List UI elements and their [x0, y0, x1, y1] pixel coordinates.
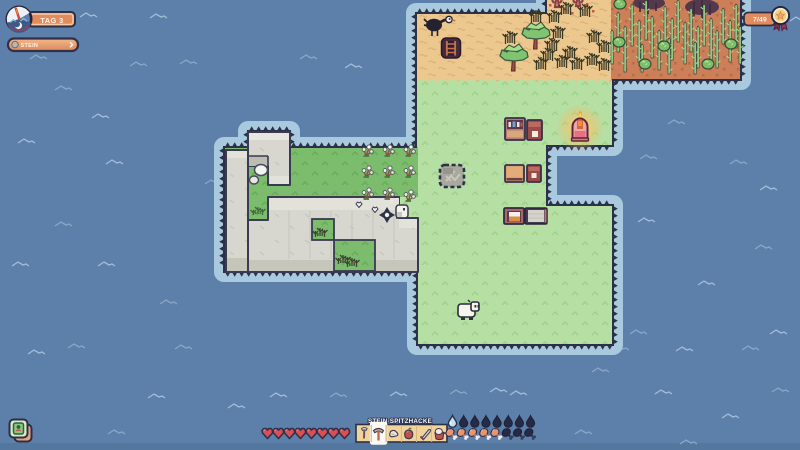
- svg-text:TAG 3: TAG 3: [40, 16, 63, 25]
- svg-text:STEIN: STEIN: [21, 43, 39, 49]
- svg-text:7/49: 7/49: [753, 17, 767, 24]
